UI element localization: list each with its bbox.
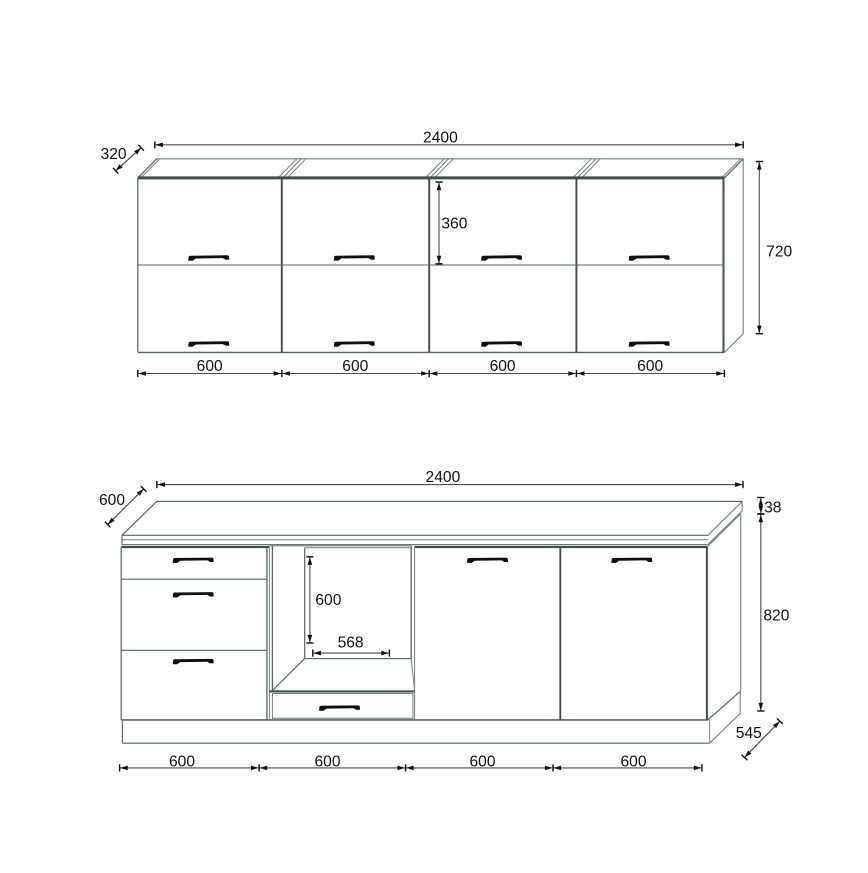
svg-text:720: 720: [766, 244, 792, 261]
svg-text:600: 600: [637, 358, 663, 375]
svg-text:38: 38: [764, 500, 781, 517]
svg-text:568: 568: [338, 635, 364, 652]
svg-text:600: 600: [490, 358, 516, 375]
svg-text:2400: 2400: [426, 469, 461, 486]
svg-text:600: 600: [342, 358, 368, 375]
svg-text:600: 600: [314, 753, 340, 770]
svg-text:360: 360: [441, 215, 467, 232]
svg-text:600: 600: [197, 358, 223, 375]
svg-text:600: 600: [469, 753, 495, 770]
svg-text:2400: 2400: [423, 129, 458, 146]
svg-text:820: 820: [763, 607, 789, 624]
svg-text:600: 600: [620, 753, 646, 770]
svg-text:600: 600: [99, 492, 125, 509]
svg-text:600: 600: [169, 753, 195, 770]
svg-text:600: 600: [315, 592, 341, 609]
svg-text:545: 545: [736, 725, 762, 742]
svg-text:320: 320: [101, 146, 127, 163]
